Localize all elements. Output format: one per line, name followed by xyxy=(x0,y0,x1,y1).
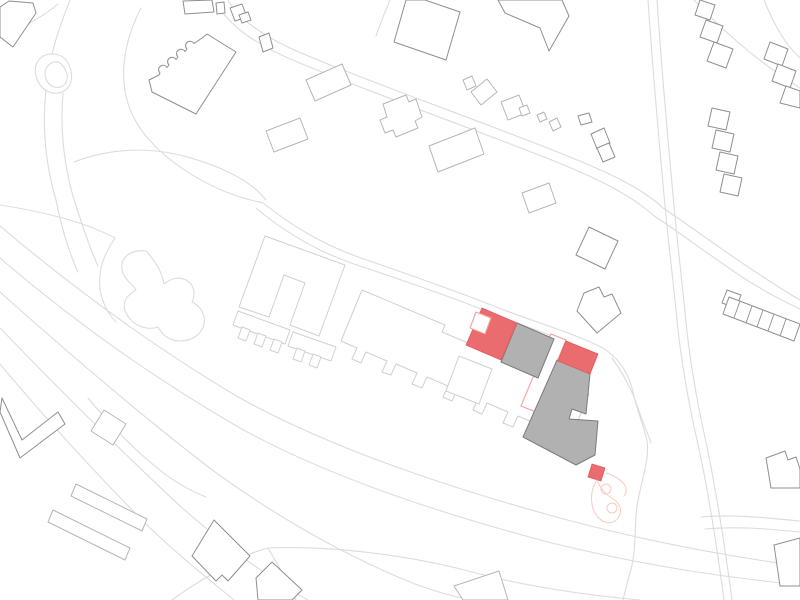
top-flag-building xyxy=(498,0,569,51)
step-z1a xyxy=(695,0,715,20)
step-z2c xyxy=(780,86,800,108)
site-plan-canvas xyxy=(0,0,800,600)
step-z3b xyxy=(712,130,734,152)
notched-east-building xyxy=(577,287,621,333)
small-pair-a xyxy=(463,76,476,90)
road-culdesac-stem-2 xyxy=(62,93,98,266)
road-path-upper xyxy=(74,150,266,200)
big-top-center xyxy=(394,0,460,60)
step-z2a xyxy=(764,42,788,66)
mid-parallelogram xyxy=(522,183,556,213)
step-z3d xyxy=(720,174,742,196)
v-building xyxy=(0,398,65,458)
road-branch-top xyxy=(376,0,390,36)
layer-site-highlight xyxy=(466,308,626,523)
thin-bar-1 xyxy=(71,484,147,531)
corner-pentagon xyxy=(0,1,36,47)
garage-tooth-1b xyxy=(254,333,266,347)
step-z3c xyxy=(716,152,738,174)
road-estate-3 xyxy=(612,358,651,443)
house-square xyxy=(578,113,592,125)
block-row-4 xyxy=(429,128,484,172)
notched-block xyxy=(380,95,422,137)
garage-tooth-1c xyxy=(270,339,282,353)
road-east-2 xyxy=(705,528,800,532)
scalloped-building xyxy=(149,34,236,114)
road-parkway-4 xyxy=(0,328,308,600)
tiny-square-2 xyxy=(549,118,561,131)
top-rect-1 xyxy=(183,0,214,14)
road-east-1 xyxy=(701,516,800,521)
site-plan-page xyxy=(0,0,800,600)
road-parkway-5 xyxy=(0,364,234,600)
road-approach-top-left xyxy=(52,0,70,54)
road-highway-v-2 xyxy=(657,0,732,600)
tiny-square-1 xyxy=(537,112,547,122)
step-z1c xyxy=(707,42,733,68)
garage-tooth-1a xyxy=(238,327,250,341)
garage-tooth-2a xyxy=(293,348,305,362)
small-rect-a xyxy=(259,33,273,52)
new-red-small xyxy=(588,464,605,481)
step-z1b xyxy=(700,20,723,43)
rot-square-west xyxy=(91,410,126,445)
rot-square-east xyxy=(576,227,618,269)
bottom-partial-building xyxy=(454,571,508,600)
bl-house-1 xyxy=(192,520,250,581)
road-culdesac-island xyxy=(45,62,67,88)
garage-tooth-2b xyxy=(309,354,321,368)
road-south-junction-b xyxy=(268,548,640,600)
block-row-1 xyxy=(306,64,351,101)
playground-loop xyxy=(591,480,620,523)
pond-blob xyxy=(122,251,205,341)
road-main-street-1b xyxy=(663,208,800,300)
step-z3a xyxy=(708,108,730,130)
notched-se-building xyxy=(766,451,800,488)
road-highway-v-1 xyxy=(648,0,724,600)
corner-se-building xyxy=(774,538,800,586)
playground-circle-2 xyxy=(607,503,617,513)
top-rect-2 xyxy=(216,2,225,14)
road-culdesac-stem-1 xyxy=(44,90,78,272)
block-row-2 xyxy=(266,118,308,152)
layer-areas xyxy=(122,251,205,341)
step-z2b xyxy=(772,64,796,88)
